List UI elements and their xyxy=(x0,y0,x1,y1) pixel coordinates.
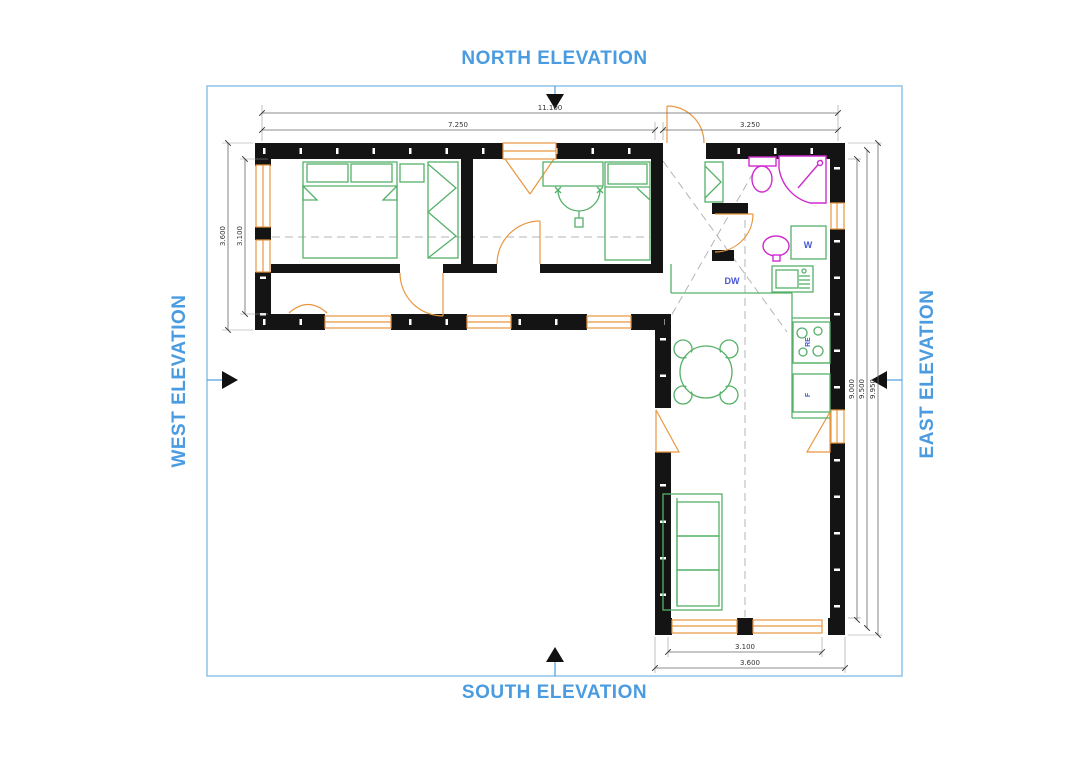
windows xyxy=(256,143,844,633)
wall-hatch-ticks xyxy=(263,151,843,612)
interior-walls xyxy=(271,159,748,273)
wash-basin xyxy=(763,236,789,261)
toilet xyxy=(749,157,776,192)
bathroom-door xyxy=(715,214,753,252)
floor-plan-page: NORTH ELEVATION SOUTH ELEVATION WEST ELE… xyxy=(0,0,1080,764)
dim-east-outer: 9.950 xyxy=(869,379,877,399)
floor-plan-drawing: W DW RE F xyxy=(0,0,1080,764)
double-bed xyxy=(303,162,397,258)
dim-top-overall: 11.100 xyxy=(538,104,563,112)
furniture xyxy=(303,162,830,610)
west-elevation-arrow xyxy=(207,371,238,389)
wardrobe xyxy=(428,162,458,258)
bedroom1-door xyxy=(400,273,443,316)
sofa xyxy=(663,494,722,610)
exterior-walls xyxy=(255,143,845,635)
range-label: RE xyxy=(805,337,812,347)
dim-east-middle: 9.500 xyxy=(858,379,866,399)
south-elevation-arrow xyxy=(546,647,564,676)
dining-set xyxy=(674,340,738,404)
corner-shower xyxy=(779,156,826,203)
centerlines xyxy=(272,161,787,617)
dim-east-inner: 9.000 xyxy=(848,379,856,399)
dining-table xyxy=(680,346,732,398)
dim-west-outer: 3.600 xyxy=(219,226,227,246)
dim-south-inner: 3.100 xyxy=(735,643,755,651)
dimension-lines xyxy=(228,113,878,668)
dim-top-right-wing: 3.250 xyxy=(740,121,760,129)
west-window xyxy=(256,165,270,272)
dim-south-outer: 3.600 xyxy=(740,659,760,667)
fridge-label: F xyxy=(805,392,812,397)
dishwasher-label: DW xyxy=(725,276,740,286)
bedside-table xyxy=(400,164,424,182)
single-bed xyxy=(605,162,650,260)
dim-west-inner: 3.100 xyxy=(236,226,244,246)
extension-lines xyxy=(222,105,882,673)
dim-top-left-wing: 7.250 xyxy=(448,121,468,129)
dining-corner-windows xyxy=(656,410,830,452)
bedroom2-door xyxy=(497,221,540,264)
entry-door xyxy=(667,106,704,143)
washer-label: W xyxy=(804,240,813,250)
hall-closet xyxy=(705,162,723,202)
bathroom-fixtures xyxy=(749,156,826,261)
desk-and-chair xyxy=(543,162,603,227)
kitchen-sink xyxy=(772,266,813,292)
